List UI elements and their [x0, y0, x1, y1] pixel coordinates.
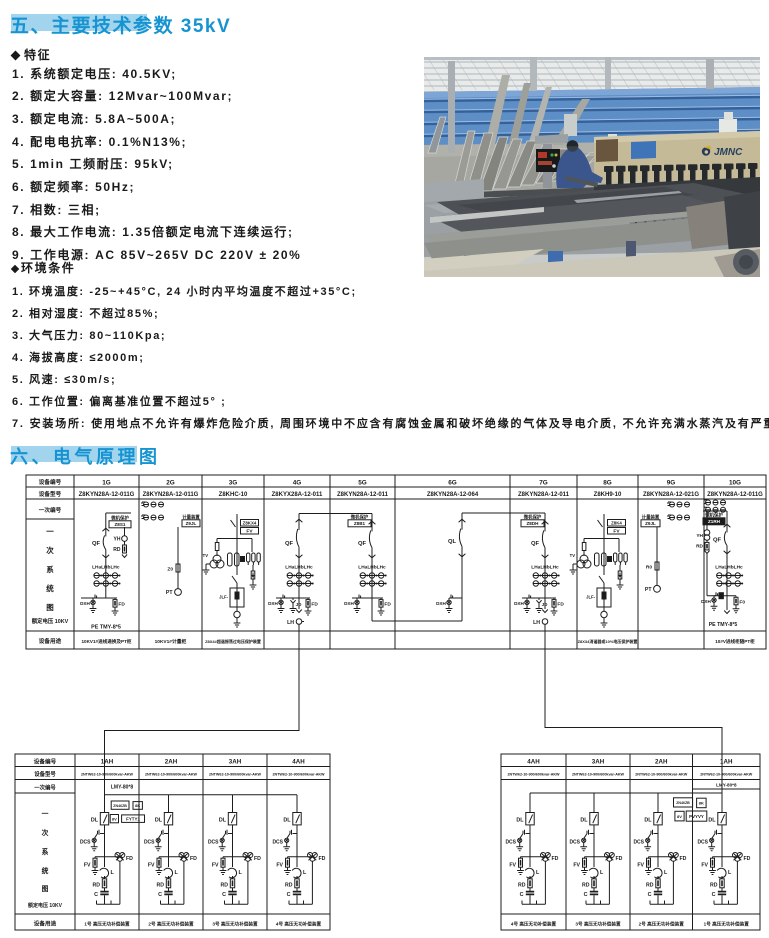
- svg-text:2NTW62-10-900/600kvar-AKW: 2NTW62-10-900/600kvar-AKW: [81, 773, 134, 777]
- svg-text:DL: DL: [283, 818, 291, 824]
- svg-text:FV: FV: [637, 863, 644, 869]
- svg-text:FYTY1: FYTY1: [126, 817, 140, 822]
- svg-text:一次编号: 一次编号: [39, 506, 62, 514]
- svg-text:DL: DL: [219, 818, 227, 824]
- svg-text:DXH: DXH: [514, 601, 524, 606]
- svg-text:8V: 8V: [677, 814, 682, 819]
- svg-text:F0: F0: [739, 599, 745, 605]
- svg-text:DCS: DCS: [208, 840, 219, 846]
- svg-text:10G: 10G: [729, 480, 741, 487]
- svg-text:统: 统: [42, 866, 49, 875]
- svg-text:Z8KH9-10: Z8KH9-10: [594, 492, 622, 498]
- svg-text:设备型号: 设备型号: [34, 770, 56, 778]
- svg-text:ZN46ZB: ZN46ZB: [676, 801, 690, 805]
- svg-text:C: C: [94, 892, 98, 898]
- svg-text:PE TMY-8*5: PE TMY-8*5: [709, 622, 738, 628]
- svg-text:2NTW62-10-900/600kvar-AKW: 2NTW62-10-900/600kvar-AKW: [635, 773, 688, 777]
- svg-text:DCS: DCS: [80, 840, 91, 846]
- svg-text:DL: DL: [155, 818, 163, 824]
- svg-text:额定电压 10KV: 额定电压 10KV: [28, 902, 63, 909]
- svg-text:RD: RD: [157, 883, 165, 889]
- svg-text:2NTW62-10-900/600kvar-AKW: 2NTW62-10-900/600kvar-AKW: [700, 773, 753, 777]
- svg-text:C: C: [648, 892, 652, 898]
- svg-text:图: 图: [42, 884, 49, 893]
- svg-text:设备型号: 设备型号: [39, 490, 62, 498]
- svg-text:7G: 7G: [539, 480, 548, 487]
- svg-text:RD: RD: [221, 883, 229, 889]
- svg-text:计量装置: 计量装置: [642, 513, 660, 520]
- svg-text:RD: RD: [710, 883, 718, 889]
- svg-text:LHaLHbLHc: LHaLHbLHc: [358, 565, 386, 571]
- svg-text:FD: FD: [319, 856, 326, 862]
- svg-text:RD: RD: [518, 883, 526, 889]
- svg-text:QF: QF: [92, 541, 101, 547]
- svg-text:C: C: [584, 892, 588, 898]
- svg-text:Z8KYN28A-12-021G: Z8KYN28A-12-021G: [643, 492, 699, 498]
- svg-text:DCS: DCS: [272, 840, 283, 846]
- svg-text:Z8KYN28A-12-011G: Z8KYN28A-12-011G: [143, 492, 199, 498]
- svg-text:1AH: 1AH: [101, 759, 114, 766]
- svg-text:QF: QF: [531, 541, 540, 547]
- svg-text:4G: 4G: [293, 480, 302, 487]
- svg-text:Z8S1: Z8S1: [115, 522, 126, 527]
- svg-text:FD: FD: [126, 856, 133, 862]
- svg-text:DCS: DCS: [633, 840, 644, 846]
- svg-text:Z8KYN28A-12-064: Z8KYN28A-12-064: [427, 492, 479, 498]
- svg-text:FV: FV: [613, 529, 620, 535]
- svg-text:2NTW62-10-900/600kvar-AKW: 2NTW62-10-900/600kvar-AKW: [209, 773, 262, 777]
- svg-text:JMNC: JMNC: [714, 147, 743, 158]
- svg-text:PT: PT: [645, 587, 652, 593]
- svg-text:2AH: 2AH: [655, 759, 668, 766]
- svg-text:LHaLHbLHc: LHaLHbLHc: [285, 565, 313, 571]
- svg-text:5G: 5G: [358, 480, 367, 487]
- svg-text:8V: 8V: [112, 817, 117, 822]
- svg-text:设备用途: 设备用途: [39, 637, 62, 645]
- svg-text:FD: FD: [744, 856, 751, 862]
- svg-text:C: C: [222, 892, 226, 898]
- svg-text:RD: RD: [696, 544, 703, 550]
- svg-text:ZN46ZB: ZN46ZB: [113, 804, 127, 808]
- svg-text:Z8K4: Z8K4: [611, 521, 622, 526]
- svg-text:次: 次: [46, 545, 54, 555]
- svg-text:LMY-80*8: LMY-80*8: [111, 785, 133, 791]
- svg-text:设备用途: 设备用途: [34, 920, 57, 928]
- svg-text:FV: FV: [246, 529, 253, 535]
- svg-text:YH: YH: [696, 533, 703, 539]
- svg-text:FV: FV: [84, 863, 91, 869]
- svg-text:DCS: DCS: [697, 840, 708, 846]
- svg-text:C: C: [712, 892, 716, 898]
- svg-text:Z8KHC-10: Z8KHC-10: [219, 492, 248, 498]
- svg-text:C: C: [520, 892, 524, 898]
- svg-text:Z0: Z0: [167, 567, 173, 573]
- svg-text:FD: FD: [616, 856, 623, 862]
- svg-text:FV: FV: [509, 863, 516, 869]
- svg-text:LHaLHbLHc: LHaLHbLHc: [92, 565, 120, 571]
- svg-text:QL: QL: [448, 539, 457, 545]
- svg-text:10#V进线柜随PT柜: 10#V进线柜随PT柜: [715, 638, 755, 645]
- svg-text:系: 系: [42, 847, 49, 856]
- svg-text:Z8B1: Z8B1: [354, 521, 366, 526]
- svg-text:Z8KYN28A-12-011G: Z8KYN28A-12-011G: [79, 492, 135, 498]
- svg-text:DXH: DXH: [268, 601, 278, 606]
- svg-text:9G: 9G: [667, 480, 676, 487]
- svg-text:2NTW62-10-900/600kvar-AKW: 2NTW62-10-900/600kvar-AKW: [272, 773, 325, 777]
- svg-text:FD: FD: [680, 856, 687, 862]
- svg-text:C: C: [158, 892, 162, 898]
- svg-text:FD: FD: [254, 856, 261, 862]
- svg-text:L: L: [536, 870, 540, 876]
- svg-text:RD: RD: [113, 547, 121, 553]
- svg-text:微机保护: 微机保护: [350, 513, 369, 520]
- svg-text:FD: FD: [384, 602, 391, 608]
- svg-text:LH: LH: [533, 620, 540, 626]
- svg-text:PE TMY-8*5: PE TMY-8*5: [91, 625, 121, 631]
- svg-text:8G: 8G: [603, 480, 612, 487]
- svg-text:QF: QF: [358, 541, 367, 547]
- svg-text:3G: 3G: [229, 480, 238, 487]
- svg-text:L: L: [303, 870, 307, 876]
- svg-text:LH: LH: [287, 620, 294, 626]
- svg-text:2号 高压无功补偿装置: 2号 高压无功补偿装置: [148, 921, 194, 928]
- svg-text:Z8KYX28A-12-011: Z8KYX28A-12-011: [272, 492, 323, 498]
- svg-text:Z8DH: Z8DH: [527, 521, 540, 526]
- svg-text:2号 高压无功补偿装置: 2号 高压无功补偿装置: [639, 921, 685, 928]
- svg-text:3号 高压无功补偿装置: 3号 高压无功补偿装置: [575, 921, 621, 928]
- svg-text:DCS: DCS: [144, 840, 155, 846]
- svg-text:JD: JD: [542, 602, 549, 607]
- svg-text:RD: RD: [285, 883, 293, 889]
- svg-text:FD: FD: [311, 602, 318, 608]
- svg-text:一次编号: 一次编号: [34, 784, 56, 792]
- svg-text:Z9JL: Z9JL: [645, 521, 656, 526]
- svg-text:FV: FV: [701, 863, 708, 869]
- svg-text:设备编号: 设备编号: [39, 478, 62, 486]
- svg-text:4号 高压无功补偿装置: 4号 高压无功补偿装置: [276, 921, 322, 928]
- svg-text:3号 高压无功补偿装置: 3号 高压无功补偿装置: [212, 921, 258, 928]
- svg-text:L: L: [175, 870, 179, 876]
- svg-text:FV: FV: [276, 863, 283, 869]
- svg-text:FD: FD: [552, 856, 559, 862]
- svg-text:Z8X4#超谐振荡过电压保护装置: Z8X4#超谐振荡过电压保护装置: [205, 638, 261, 644]
- svg-text:FD: FD: [118, 602, 125, 608]
- svg-text:DXH: DXH: [436, 601, 446, 606]
- svg-text:QF: QF: [285, 541, 294, 547]
- svg-text:JLF-: JLF-: [586, 595, 595, 600]
- svg-text:FV: FV: [212, 863, 219, 869]
- svg-text:微机保护: 微机保护: [523, 513, 542, 520]
- svg-text:L: L: [111, 870, 115, 876]
- svg-text:FD: FD: [190, 856, 197, 862]
- svg-text:JD: JD: [296, 602, 303, 607]
- svg-text:LHaLHbLHc: LHaLHbLHc: [715, 565, 743, 571]
- svg-text:QF: QF: [713, 538, 722, 544]
- svg-text:FV: FV: [573, 863, 580, 869]
- svg-text:一: 一: [42, 811, 49, 818]
- svg-text:10KV1#进线递换及PT柜: 10KV1#进线递换及PT柜: [81, 638, 131, 645]
- svg-text:R0: R0: [646, 565, 652, 571]
- svg-text:3AH: 3AH: [229, 759, 242, 766]
- svg-text:LMY-80*8: LMY-80*8: [716, 783, 737, 788]
- svg-text:8K: 8K: [699, 801, 704, 806]
- svg-text:Z9JL: Z9JL: [186, 521, 197, 526]
- svg-text:RD: RD: [93, 883, 101, 889]
- svg-text:L: L: [664, 870, 668, 876]
- svg-text:L: L: [239, 870, 243, 876]
- svg-text:微机保护: 微机保护: [704, 511, 723, 518]
- svg-text:Z8KYN28A-12-011G: Z8KYN28A-12-011G: [707, 492, 763, 498]
- svg-text:TV: TV: [203, 553, 209, 558]
- svg-text:1AH: 1AH: [720, 759, 733, 766]
- svg-text:2AH: 2AH: [165, 759, 178, 766]
- svg-text:DXH: DXH: [344, 601, 354, 606]
- svg-text:2NTW62-10-900/600kvar-AKW: 2NTW62-10-900/600kvar-AKW: [145, 773, 198, 777]
- svg-text:4AH: 4AH: [527, 759, 540, 766]
- svg-text:2G: 2G: [166, 480, 175, 487]
- svg-text:3AH: 3AH: [592, 759, 605, 766]
- svg-text:2NTW62-10-900/600kvar-AKW: 2NTW62-10-900/600kvar-AKW: [507, 773, 560, 777]
- svg-text:JLF-: JLF-: [219, 595, 228, 600]
- svg-text:设备编号: 设备编号: [34, 758, 57, 766]
- svg-text:10KV1#计量柜: 10KV1#计量柜: [155, 638, 187, 645]
- svg-text:RD: RD: [582, 883, 590, 889]
- svg-text:DCS: DCS: [505, 840, 516, 846]
- svg-text:次: 次: [42, 828, 49, 837]
- svg-text:C: C: [287, 892, 291, 898]
- svg-text:4号 高压无功补偿装置: 4号 高压无功补偿装置: [511, 921, 557, 928]
- svg-text:Z8KYN28A-12-011: Z8KYN28A-12-011: [518, 492, 570, 498]
- svg-text:Z8X34消谐器或10%电压保护装置: Z8X34消谐器或10%电压保护装置: [578, 638, 638, 644]
- svg-text:1号 高压无功补偿装置: 1号 高压无功补偿装置: [704, 921, 750, 928]
- svg-text:微机保护: 微机保护: [110, 514, 129, 521]
- svg-text:L: L: [728, 870, 732, 876]
- svg-text:图: 图: [46, 603, 54, 612]
- svg-text:LHaLHbLHc: LHaLHbLHc: [531, 565, 559, 571]
- svg-text:一: 一: [46, 527, 54, 536]
- svg-text:额定电压 10KV: 额定电压 10KV: [32, 617, 69, 625]
- svg-text:L: L: [600, 870, 604, 876]
- svg-text:Z8KYN28A-12-011: Z8KYN28A-12-011: [337, 492, 389, 498]
- svg-text:DCS: DCS: [569, 840, 580, 846]
- svg-text:计量装置: 计量装置: [182, 513, 200, 520]
- svg-text:DXH: DXH: [701, 599, 711, 604]
- svg-text:统: 统: [46, 583, 54, 593]
- svg-text:DL: DL: [644, 818, 652, 824]
- svg-text:PT: PT: [166, 590, 173, 596]
- svg-text:DL: DL: [91, 818, 99, 824]
- svg-text:DL: DL: [516, 818, 524, 824]
- svg-text:系: 系: [46, 564, 54, 574]
- svg-text:RD: RD: [646, 883, 654, 889]
- svg-text:DXH: DXH: [80, 601, 90, 606]
- svg-text:YH: YH: [114, 537, 121, 543]
- svg-text:DL: DL: [708, 818, 716, 824]
- svg-text:1号 高压无功补偿装置: 1号 高压无功补偿装置: [84, 921, 130, 928]
- svg-text:1G: 1G: [102, 480, 111, 487]
- svg-text:Z1RH: Z1RH: [708, 519, 721, 524]
- svg-text:6G: 6G: [448, 480, 457, 487]
- svg-text:2NTW62-10-900/600kvar-AKW: 2NTW62-10-900/600kvar-AKW: [572, 773, 625, 777]
- svg-text:TV: TV: [570, 553, 576, 558]
- svg-text:4AH: 4AH: [292, 759, 305, 766]
- svg-text:DL: DL: [580, 818, 588, 824]
- svg-text:FD: FD: [557, 602, 564, 608]
- svg-text:PVYVY: PVYVY: [689, 814, 704, 819]
- svg-text:FV: FV: [148, 863, 155, 869]
- svg-text:8K: 8K: [135, 803, 140, 808]
- svg-text:Z8KX4: Z8KX4: [243, 521, 257, 526]
